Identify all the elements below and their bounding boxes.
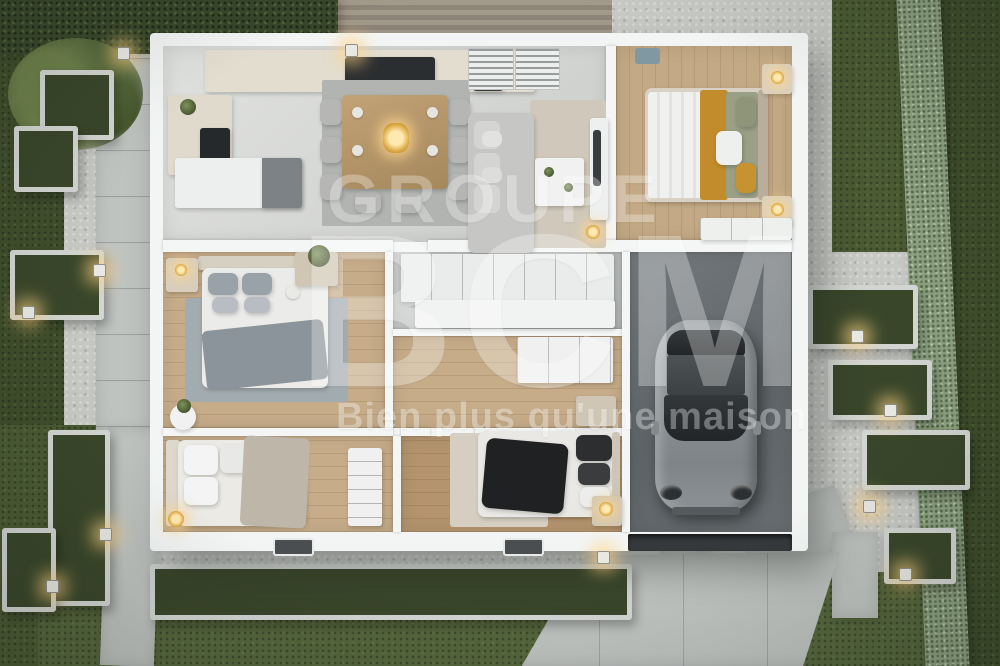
path-light	[884, 404, 897, 417]
planter-long-bottom	[150, 564, 632, 620]
stepping-slab	[832, 532, 878, 618]
scene-canvas: GROUPE BCM Bien plus qu'une maison	[0, 0, 1000, 666]
island-dark-end	[262, 158, 302, 208]
table-centerpiece-candles	[383, 123, 409, 153]
door-mat	[635, 48, 660, 64]
pillow	[242, 273, 272, 295]
planter	[862, 430, 970, 490]
ceiling-vent	[515, 48, 560, 90]
nightstand-lamp	[771, 71, 784, 84]
planter-plants	[19, 131, 73, 187]
pillow	[184, 477, 218, 505]
master-pillow-olive	[736, 97, 756, 127]
window	[503, 538, 544, 556]
ceiling-vent	[468, 48, 514, 90]
window	[273, 538, 314, 556]
car-headlight	[730, 485, 752, 500]
planter-plants	[53, 435, 105, 601]
path-light	[899, 568, 912, 581]
planter	[14, 126, 78, 192]
watermark-bcm: BCM	[297, 212, 811, 413]
planter-plants	[867, 435, 965, 485]
path-light	[46, 580, 59, 593]
master-pillow-mustard	[736, 163, 756, 193]
plate	[352, 145, 363, 156]
path-light	[117, 47, 130, 60]
planter	[828, 360, 932, 420]
master-headboard	[758, 90, 768, 200]
car-front-intake	[672, 507, 740, 515]
path-light	[851, 330, 864, 343]
path-light	[93, 264, 106, 277]
plate	[427, 107, 438, 118]
path-light	[22, 306, 35, 319]
table-plant	[177, 399, 191, 413]
planter	[2, 528, 56, 612]
planter-plants	[833, 365, 927, 415]
sofa-pillow	[482, 131, 502, 147]
planter	[884, 528, 956, 584]
planter-plants	[155, 569, 627, 615]
counter-plant	[180, 99, 196, 115]
black-throw	[481, 438, 569, 515]
path-light	[345, 44, 358, 57]
car-headlight	[660, 485, 682, 500]
dining-chair	[448, 99, 470, 125]
master-pillow-white	[716, 131, 742, 165]
beige-throw	[240, 435, 311, 528]
planter-plants	[7, 533, 51, 607]
wall	[393, 436, 401, 532]
pillow	[208, 273, 238, 295]
plate	[427, 145, 438, 156]
gold-lamp	[168, 511, 184, 527]
nightstand-lamp	[175, 264, 187, 276]
path-light	[99, 528, 112, 541]
white-desk	[348, 448, 382, 526]
pillow	[212, 297, 238, 313]
pillow	[244, 297, 270, 313]
garage-door-opening	[628, 534, 792, 551]
watermark-slogan: Bien plus qu'une maison	[336, 396, 807, 439]
gold-ball-lamp	[599, 502, 613, 516]
dark-pillow	[578, 463, 610, 485]
pillow	[184, 445, 218, 475]
path-light	[863, 500, 876, 513]
plate	[352, 107, 363, 118]
dining-chair	[320, 99, 342, 125]
wall-light	[597, 551, 610, 564]
